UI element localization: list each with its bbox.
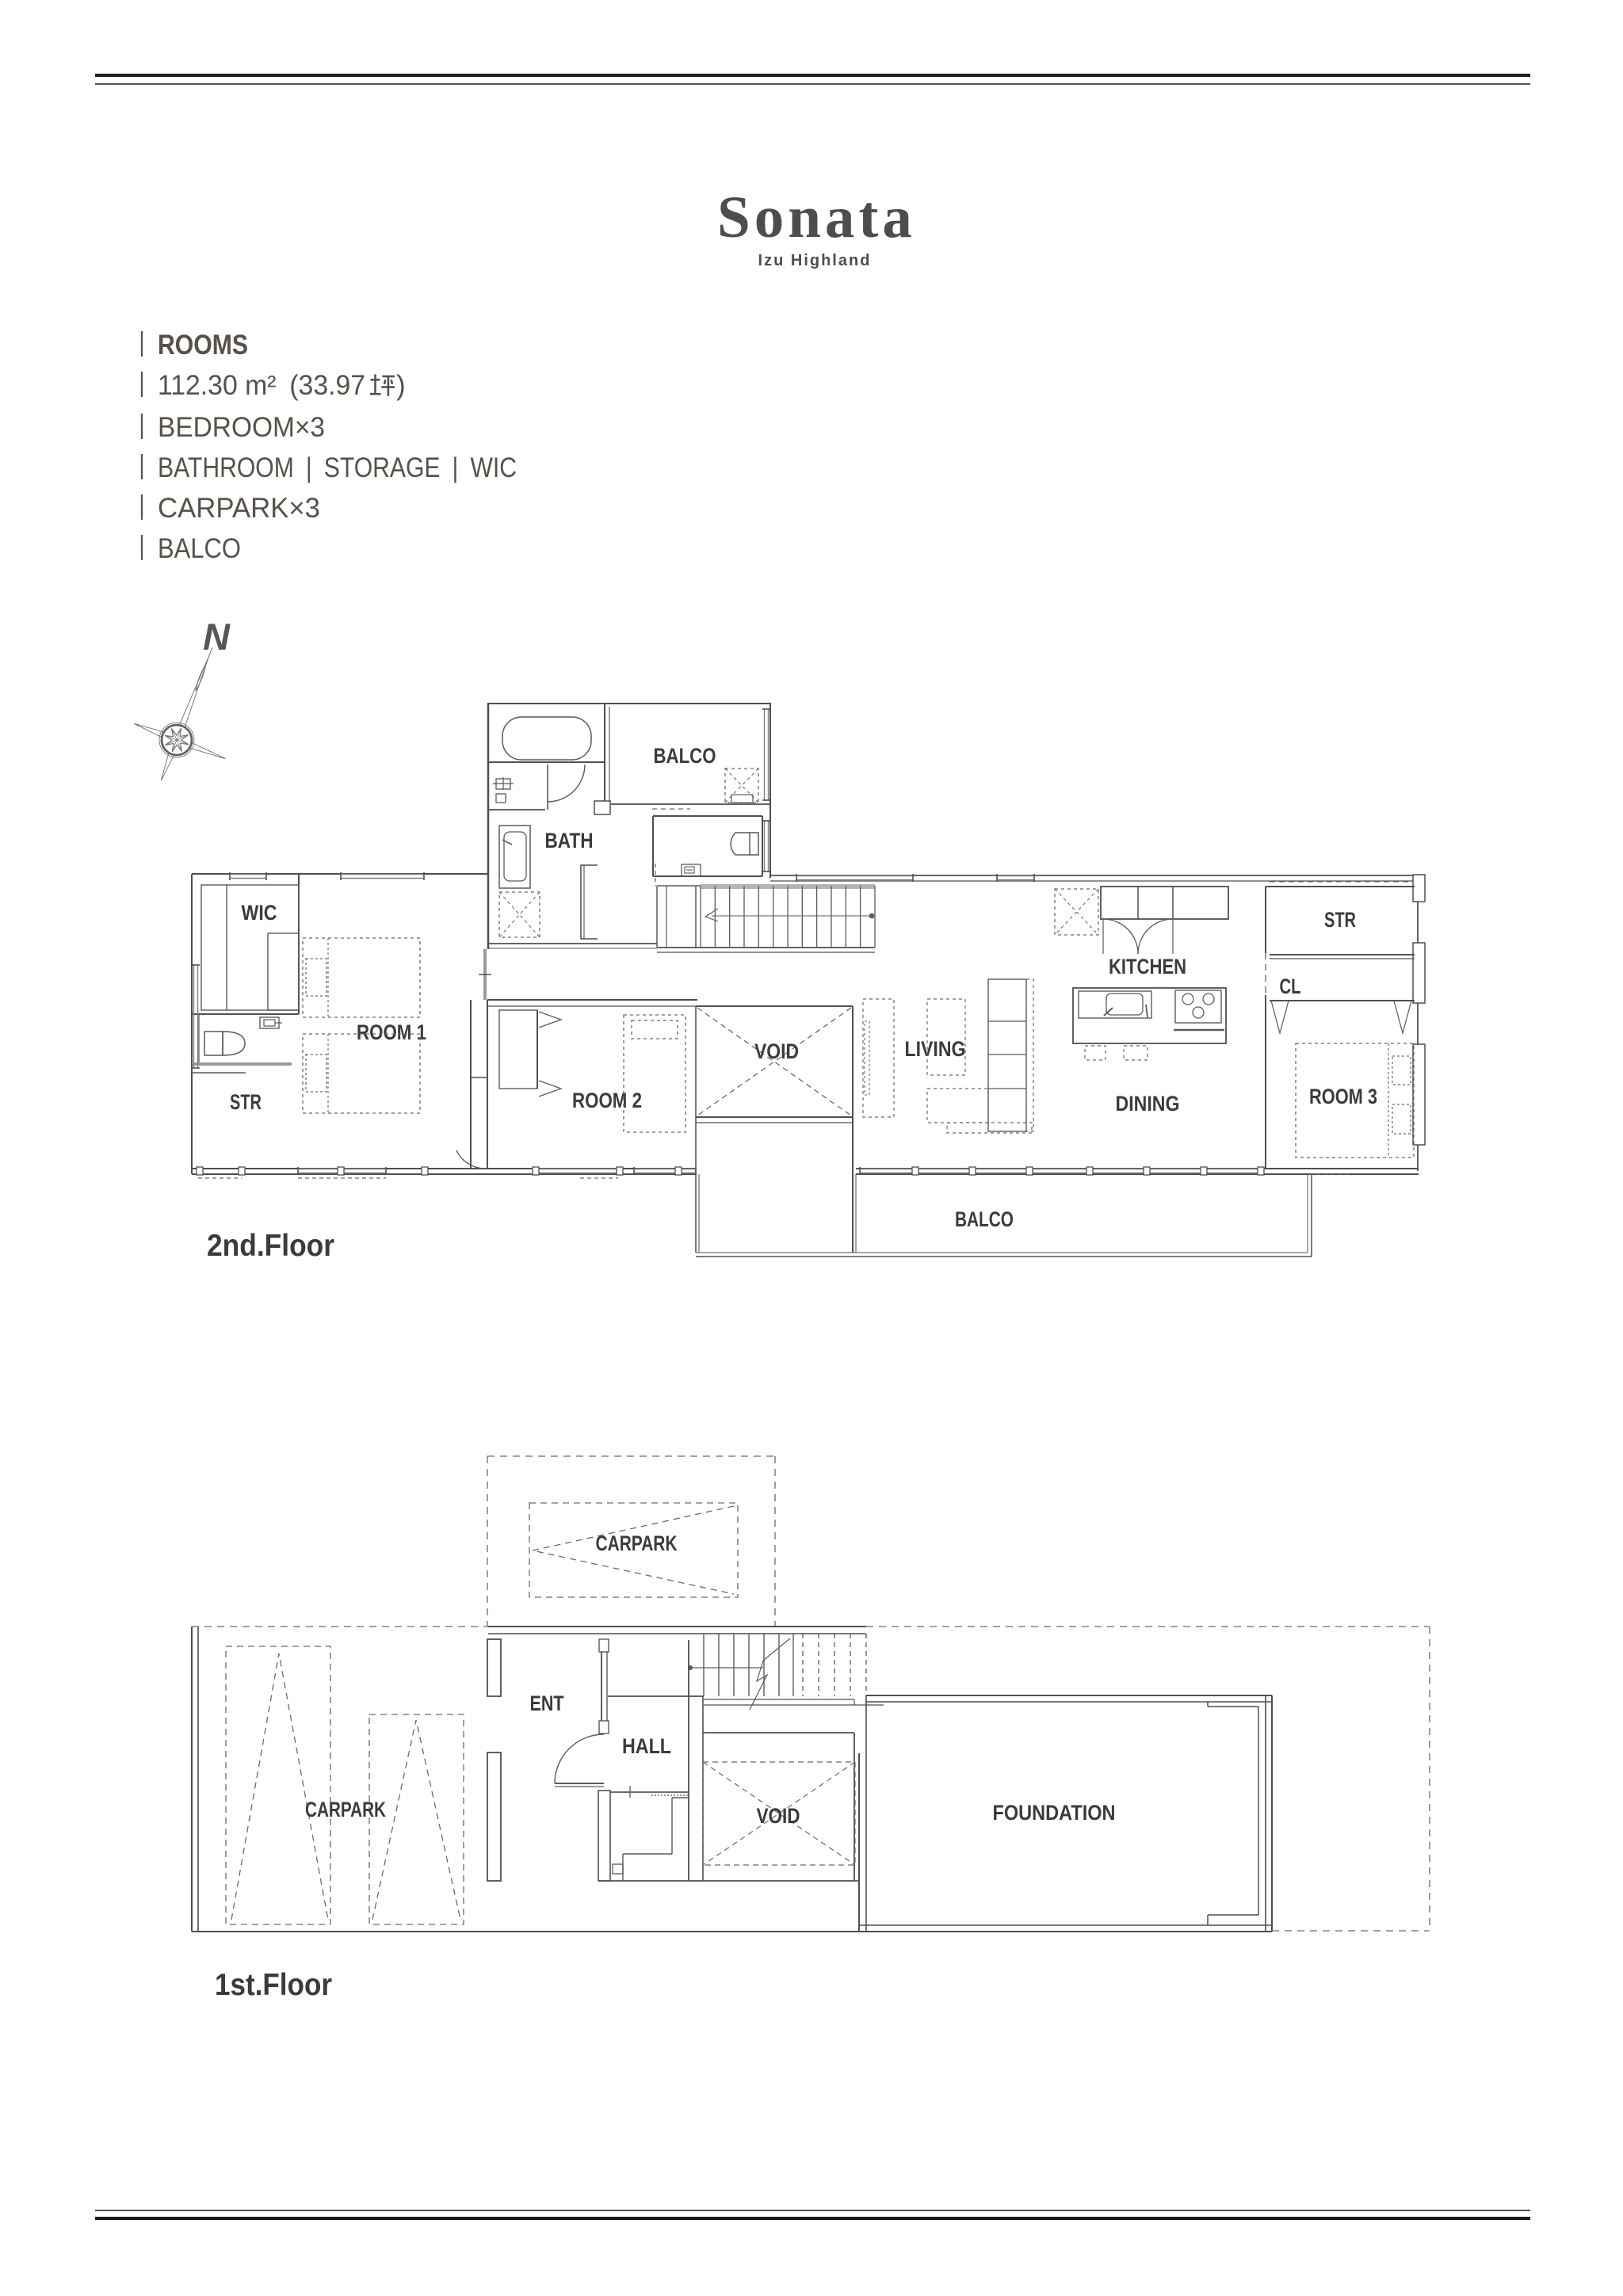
svg-text:CARPARK×3: CARPARK×3 [158, 493, 320, 524]
svg-text:ROOM 1: ROOM 1 [357, 1020, 426, 1044]
svg-text:112.30 m² (33.97: 112.30 m² (33.97 [158, 370, 365, 401]
svg-text:Sonata: Sonata [717, 185, 916, 250]
svg-text:1st.Floor: 1st.Floor [215, 1968, 332, 2002]
svg-text:VOID: VOID [757, 1804, 800, 1828]
svg-text:KITCHEN: KITCHEN [1109, 955, 1186, 978]
svg-text:HALL: HALL [622, 1734, 671, 1758]
svg-text:N: N [203, 616, 231, 658]
svg-text:): ) [396, 370, 406, 401]
svg-text:CARPARK: CARPARK [305, 1798, 386, 1821]
svg-text:BEDROOM×3: BEDROOM×3 [158, 412, 325, 443]
svg-text:CL: CL [1280, 974, 1301, 998]
svg-text:ROOM 2: ROOM 2 [572, 1089, 642, 1112]
svg-text:BALCO: BALCO [654, 744, 716, 768]
svg-text:STR: STR [1324, 908, 1356, 932]
svg-text:ROOMS: ROOMS [158, 330, 248, 360]
svg-text:STR: STR [230, 1090, 262, 1114]
svg-text:BALCO: BALCO [158, 533, 241, 564]
svg-text:ENT: ENT [530, 1691, 564, 1715]
svg-text:FOUNDATION: FOUNDATION [993, 1801, 1116, 1825]
svg-text:DINING: DINING [1116, 1092, 1180, 1116]
svg-text:ROOM 3: ROOM 3 [1309, 1085, 1377, 1108]
svg-text:CARPARK: CARPARK [596, 1531, 678, 1555]
svg-text:WIC: WIC [242, 901, 277, 925]
svg-text:VOID: VOID [754, 1039, 799, 1063]
svg-text:LIVING: LIVING [905, 1037, 966, 1061]
svg-text:BALCO: BALCO [955, 1207, 1014, 1231]
svg-text:Izu Highland: Izu Highland [758, 252, 872, 269]
svg-text:BATH: BATH [545, 829, 594, 852]
svg-text:2nd.Floor: 2nd.Floor [207, 1229, 334, 1263]
svg-text:BATHROOM | STORAGE | WIC: BATHROOM | STORAGE | WIC [158, 452, 517, 483]
